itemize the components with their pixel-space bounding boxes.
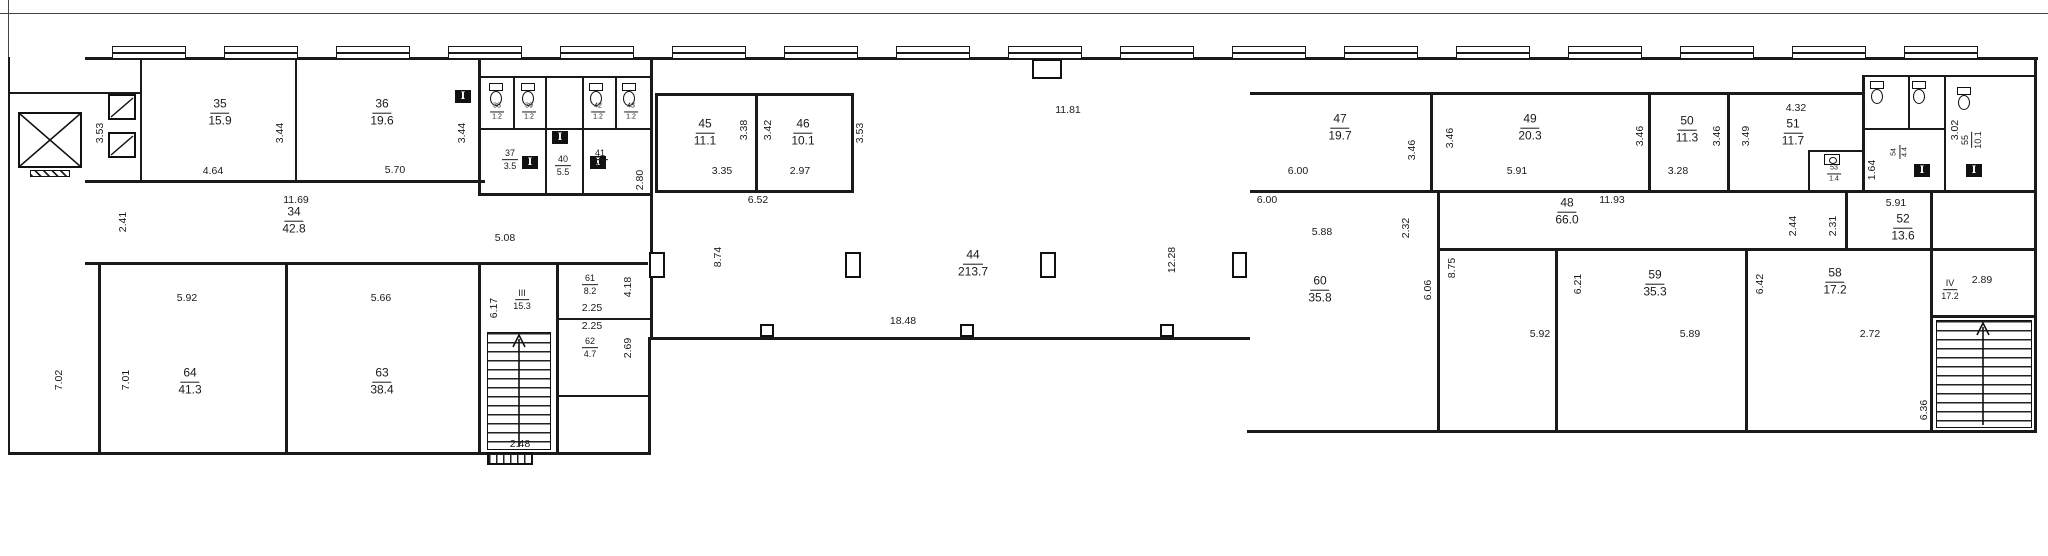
- room-area: 1.4: [1827, 175, 1841, 184]
- dimension-label: 3.44: [456, 123, 468, 143]
- room-label-39: 391.2: [522, 102, 536, 121]
- room-number: 55: [1960, 132, 1972, 148]
- room-area: 35.8: [1308, 291, 1331, 306]
- room-area: 11.1: [694, 134, 716, 149]
- dimension-label: 1.64: [1866, 160, 1878, 180]
- wall: [1250, 92, 1862, 95]
- column: [1160, 324, 1174, 337]
- toilet-tank: [1870, 81, 1884, 89]
- window: [1904, 46, 1978, 59]
- window: [1792, 46, 1866, 59]
- dimension-label: 2.32: [1400, 218, 1412, 238]
- column: [760, 324, 774, 337]
- wall: [615, 78, 617, 130]
- dimension-label: 5.88: [1312, 226, 1332, 238]
- dimension-label: 5.66: [371, 292, 391, 304]
- dimension-label: 5.08: [495, 232, 515, 244]
- wall: [1930, 193, 1933, 430]
- room-number: IV: [1943, 278, 1958, 290]
- wall: [1745, 250, 1748, 430]
- vent-shaft: [108, 94, 136, 120]
- room-number: 46: [793, 118, 812, 134]
- room-number: 45: [695, 118, 714, 134]
- wall: [556, 265, 559, 452]
- window: [1232, 46, 1306, 59]
- window: [336, 46, 410, 59]
- room-area: 19.7: [1328, 129, 1351, 144]
- wall: [1862, 75, 1865, 193]
- room-label-49: 4920.3: [1518, 113, 1541, 144]
- elevator-cross-icon: [20, 114, 80, 166]
- dimension-label: 3.46: [1444, 128, 1456, 148]
- dimension-label: 2.44: [1787, 216, 1799, 236]
- wall: [478, 76, 650, 78]
- wall: [1808, 150, 1810, 191]
- column: [1032, 59, 1062, 79]
- toilet-icon: [1869, 80, 1885, 105]
- shaft-flap-icon: [110, 96, 134, 118]
- room-area: 4.4: [1901, 145, 1910, 159]
- room-label-42: 421.2: [591, 102, 605, 121]
- window: [1680, 46, 1754, 59]
- wall: [85, 180, 485, 183]
- dimension-label: 8.74: [712, 247, 724, 267]
- wall: [480, 128, 650, 130]
- dimension-label: 18.48: [890, 315, 916, 327]
- room-area: 15.9: [208, 114, 231, 129]
- toilet-tank: [521, 83, 535, 91]
- room-area: 19.6: [370, 114, 393, 129]
- room-number: 40: [555, 154, 571, 166]
- dimension-label: 6.52: [748, 194, 768, 206]
- dimension-label: 3.38: [738, 120, 750, 140]
- room-area: 4.7: [582, 349, 598, 360]
- dimension-label: 2.25: [582, 302, 602, 314]
- dimension-label: 6.17: [488, 298, 500, 318]
- room-area: 1.2: [624, 113, 638, 122]
- dimension-label: 3.46: [1406, 140, 1418, 160]
- toilet-icon: [1911, 80, 1927, 105]
- column: [845, 252, 861, 278]
- dimension-label: 6.00: [1257, 194, 1277, 206]
- room-number: 51: [1783, 118, 1802, 134]
- dimension-label: 3.53: [94, 123, 106, 143]
- dimension-label: 6.36: [1918, 400, 1930, 420]
- sink-icon: [1824, 154, 1840, 165]
- dimension-label: 2.25: [582, 320, 602, 332]
- room-area: 11.3: [1676, 131, 1698, 146]
- wall: [1437, 193, 1440, 430]
- wall: [1247, 430, 2037, 433]
- toilet-tank: [1957, 87, 1971, 95]
- dimension-label: 5.70: [385, 164, 405, 176]
- dimension-label: 6.21: [1572, 274, 1584, 294]
- room-number: 39: [522, 102, 536, 112]
- room-area: 17.2: [1941, 291, 1959, 302]
- room-label-54: 544.4: [1890, 145, 1909, 159]
- dimension-label: 5.92: [177, 292, 197, 304]
- room-label-37: 373.5: [502, 148, 518, 172]
- wall: [1862, 75, 2034, 77]
- dimension-label: 8.75: [1446, 258, 1458, 278]
- wall: [582, 78, 584, 195]
- door-marker-icon: I: [1966, 164, 1982, 177]
- window: [672, 46, 746, 59]
- wall: [8, 452, 651, 455]
- wall: [1250, 190, 2034, 193]
- wall: [1555, 250, 1558, 430]
- room-number: 49: [1520, 113, 1539, 129]
- room-label-53: 531.4: [1827, 164, 1841, 183]
- room-area: 41.3: [178, 383, 201, 398]
- room-area: 1.2: [591, 113, 605, 122]
- room-label-34: 3442.8: [282, 206, 305, 237]
- room-number: 37: [502, 148, 518, 160]
- dimension-label: 2.69: [622, 338, 634, 358]
- room-area: 213.7: [958, 265, 988, 280]
- room-label-61: 618.2: [582, 273, 598, 297]
- column: [1040, 252, 1056, 278]
- wall: [478, 193, 650, 196]
- room-label-III: III15.3: [513, 288, 531, 312]
- room-label-36: 3619.6: [370, 98, 393, 129]
- dimension-label: 11.93: [1599, 194, 1625, 206]
- dimension-label: 2.72: [1860, 328, 1880, 340]
- wall: [650, 337, 1250, 340]
- room-number: 43: [624, 102, 638, 112]
- room-label-IV: IV17.2: [1941, 278, 1959, 302]
- site-boundary-top: [0, 13, 2048, 14]
- dimension-label: 6.06: [1422, 280, 1434, 300]
- room-number: 44: [963, 249, 982, 265]
- dimension-label: 2.31: [1827, 216, 1839, 236]
- room-label-63: 6338.4: [370, 367, 393, 398]
- room-label-41: 413.4: [592, 148, 608, 172]
- dimension-label: 6.00: [1288, 165, 1308, 177]
- floor-plan: IIIIII 3515.93619.63442.8373.5405.5413.4…: [0, 0, 2048, 556]
- room-area: 5.5: [555, 167, 571, 178]
- stairs-up-arrow-III: [509, 331, 529, 451]
- window: [784, 46, 858, 59]
- toilet-bowl: [1958, 95, 1970, 110]
- elevator-door-sill: [30, 170, 70, 177]
- door-marker-icon: I: [522, 156, 538, 169]
- dimension-label: 2.48: [510, 438, 530, 450]
- dimension-label: 5.91: [1507, 165, 1527, 177]
- stairs-up-arrow-IV: [1973, 319, 1993, 429]
- room-number: 47: [1330, 113, 1349, 129]
- window: [1456, 46, 1530, 59]
- wall: [650, 57, 653, 340]
- wall: [755, 93, 758, 192]
- room-number: 34: [284, 206, 303, 222]
- room-area: 8.2: [582, 286, 598, 297]
- room-number: 64: [180, 367, 199, 383]
- dimension-label: 2.97: [790, 165, 810, 177]
- dimension-label: 5.91: [1886, 197, 1906, 209]
- dimension-label: 12.28: [1166, 247, 1178, 273]
- wall: [1727, 92, 1730, 193]
- window: [112, 46, 186, 59]
- room-label-59: 5935.3: [1643, 269, 1666, 300]
- room-area: 13.6: [1891, 229, 1914, 244]
- room-number: 38: [490, 102, 504, 112]
- room-label-38: 381.2: [490, 102, 504, 121]
- dimension-label: 3.02: [1949, 120, 1961, 140]
- dimension-label: 5.92: [1530, 328, 1550, 340]
- column: [1232, 252, 1247, 278]
- door-marker-icon: I: [552, 131, 568, 144]
- room-number: 54: [1890, 145, 1900, 159]
- room-area: 20.3: [1518, 129, 1541, 144]
- room-area: 10.1: [791, 134, 814, 149]
- wall: [1864, 128, 1944, 130]
- room-number: 59: [1645, 269, 1664, 285]
- wall: [513, 78, 515, 130]
- room-number: 41: [592, 148, 608, 160]
- dimension-label: 2.89: [1972, 274, 1992, 286]
- wall: [1437, 248, 2034, 251]
- dimension-label: 3.42: [762, 120, 774, 140]
- room-area: 66.0: [1555, 213, 1578, 228]
- room-number: 63: [372, 367, 391, 383]
- dimension-label: 3.46: [1711, 126, 1723, 146]
- room-area: 3.4: [592, 161, 608, 172]
- dimension-label: 4.64: [203, 165, 223, 177]
- room-area: 1.2: [522, 113, 536, 122]
- room-number: 50: [1677, 115, 1696, 131]
- dimension-label: 7.02: [53, 370, 65, 390]
- shaft-flap-icon: [110, 134, 134, 156]
- wall: [1648, 92, 1651, 193]
- toilet-tank: [489, 83, 503, 91]
- room-label-52: 5213.6: [1891, 213, 1914, 244]
- dimension-label: 3.53: [854, 123, 866, 143]
- room-label-51: 5111.7: [1782, 118, 1804, 149]
- wall: [558, 318, 650, 320]
- room-label-62: 624.7: [582, 336, 598, 360]
- toilet-bowl: [1871, 89, 1883, 104]
- wall: [295, 59, 297, 182]
- window: [224, 46, 298, 59]
- room-label-43: 431.2: [624, 102, 638, 121]
- dimension-label: 2.80: [634, 170, 646, 190]
- room-area: 1.2: [490, 113, 504, 122]
- room-label-44: 44213.7: [958, 249, 988, 280]
- window: [1120, 46, 1194, 59]
- wall: [478, 265, 481, 452]
- entrance-porch: [487, 452, 533, 465]
- dimension-label: 6.42: [1754, 274, 1766, 294]
- room-number: 61: [582, 273, 598, 285]
- room-number: III: [515, 288, 529, 300]
- dimension-label: 11.69: [283, 194, 309, 206]
- wall: [1808, 150, 1862, 152]
- dimension-label: 3.35: [712, 165, 732, 177]
- wall: [1430, 92, 1433, 193]
- room-number: 48: [1557, 197, 1576, 213]
- room-label-50: 5011.3: [1676, 115, 1698, 146]
- toilet-icon: [1956, 86, 1972, 111]
- vent-shaft: [108, 132, 136, 158]
- wall: [1930, 315, 2034, 318]
- wall: [2034, 57, 2037, 433]
- room-number: 58: [1825, 267, 1844, 283]
- toilet-tank: [1912, 81, 1926, 89]
- room-label-58: 5817.2: [1823, 267, 1846, 298]
- wall: [85, 262, 648, 265]
- dimension-label: 3.28: [1668, 165, 1688, 177]
- column: [649, 252, 665, 278]
- room-label-45: 4511.1: [694, 118, 716, 149]
- wall: [1908, 75, 1910, 130]
- window: [560, 46, 634, 59]
- dimension-label: 11.81: [1055, 104, 1081, 116]
- room-label-47: 4719.7: [1328, 113, 1351, 144]
- room-number: 52: [1893, 213, 1912, 229]
- dimension-label: 3.44: [274, 123, 286, 143]
- wall: [140, 59, 142, 182]
- room-number: 53: [1827, 164, 1841, 174]
- room-area: 10.1: [1973, 131, 1984, 149]
- dimension-label: 4.32: [1786, 102, 1806, 114]
- window: [1008, 46, 1082, 59]
- door-marker-icon: I: [1914, 164, 1930, 177]
- room-label-35: 3515.9: [208, 98, 231, 129]
- window: [1568, 46, 1642, 59]
- wall: [1845, 193, 1848, 248]
- room-area: 35.3: [1643, 285, 1666, 300]
- room-area: 17.2: [1823, 283, 1846, 298]
- window: [896, 46, 970, 59]
- room-number: 42: [591, 102, 605, 112]
- room-label-60: 6035.8: [1308, 275, 1331, 306]
- room-area: 11.7: [1782, 134, 1804, 149]
- dimension-label: 5.89: [1680, 328, 1700, 340]
- toilet-tank: [622, 83, 636, 91]
- room-number: 35: [210, 98, 229, 114]
- room-area: 42.8: [282, 222, 305, 237]
- room-label-55: 5510.1: [1960, 131, 1984, 149]
- window: [1344, 46, 1418, 59]
- toilet-bowl: [1913, 89, 1925, 104]
- column: [960, 324, 974, 337]
- dimension-label: 4.18: [622, 277, 634, 297]
- wall: [558, 395, 650, 397]
- site-boundary-left: [8, 0, 9, 57]
- room-label-64: 6441.3: [178, 367, 201, 398]
- wall: [285, 265, 288, 452]
- wall: [98, 265, 101, 452]
- wall: [655, 93, 658, 192]
- dimension-label: 3.46: [1634, 126, 1646, 146]
- room-label-40: 405.5: [555, 154, 571, 178]
- door-marker-icon: I: [455, 90, 471, 103]
- wall: [1944, 75, 1946, 191]
- room-area: 15.3: [513, 301, 531, 312]
- room-number: 60: [1310, 275, 1329, 291]
- toilet-tank: [589, 83, 603, 91]
- dimension-label: 3.49: [1740, 126, 1752, 146]
- room-label-46: 4610.1: [791, 118, 814, 149]
- room-area: 3.5: [502, 161, 518, 172]
- wall: [8, 57, 10, 455]
- room-number: 36: [372, 98, 391, 114]
- dimension-label: 7.01: [120, 370, 132, 390]
- room-label-48: 4866.0: [1555, 197, 1578, 228]
- room-area: 38.4: [370, 383, 393, 398]
- window: [448, 46, 522, 59]
- wall: [545, 78, 547, 195]
- elevator-shaft: [18, 112, 82, 168]
- room-number: 62: [582, 336, 598, 348]
- dimension-label: 2.41: [117, 212, 129, 232]
